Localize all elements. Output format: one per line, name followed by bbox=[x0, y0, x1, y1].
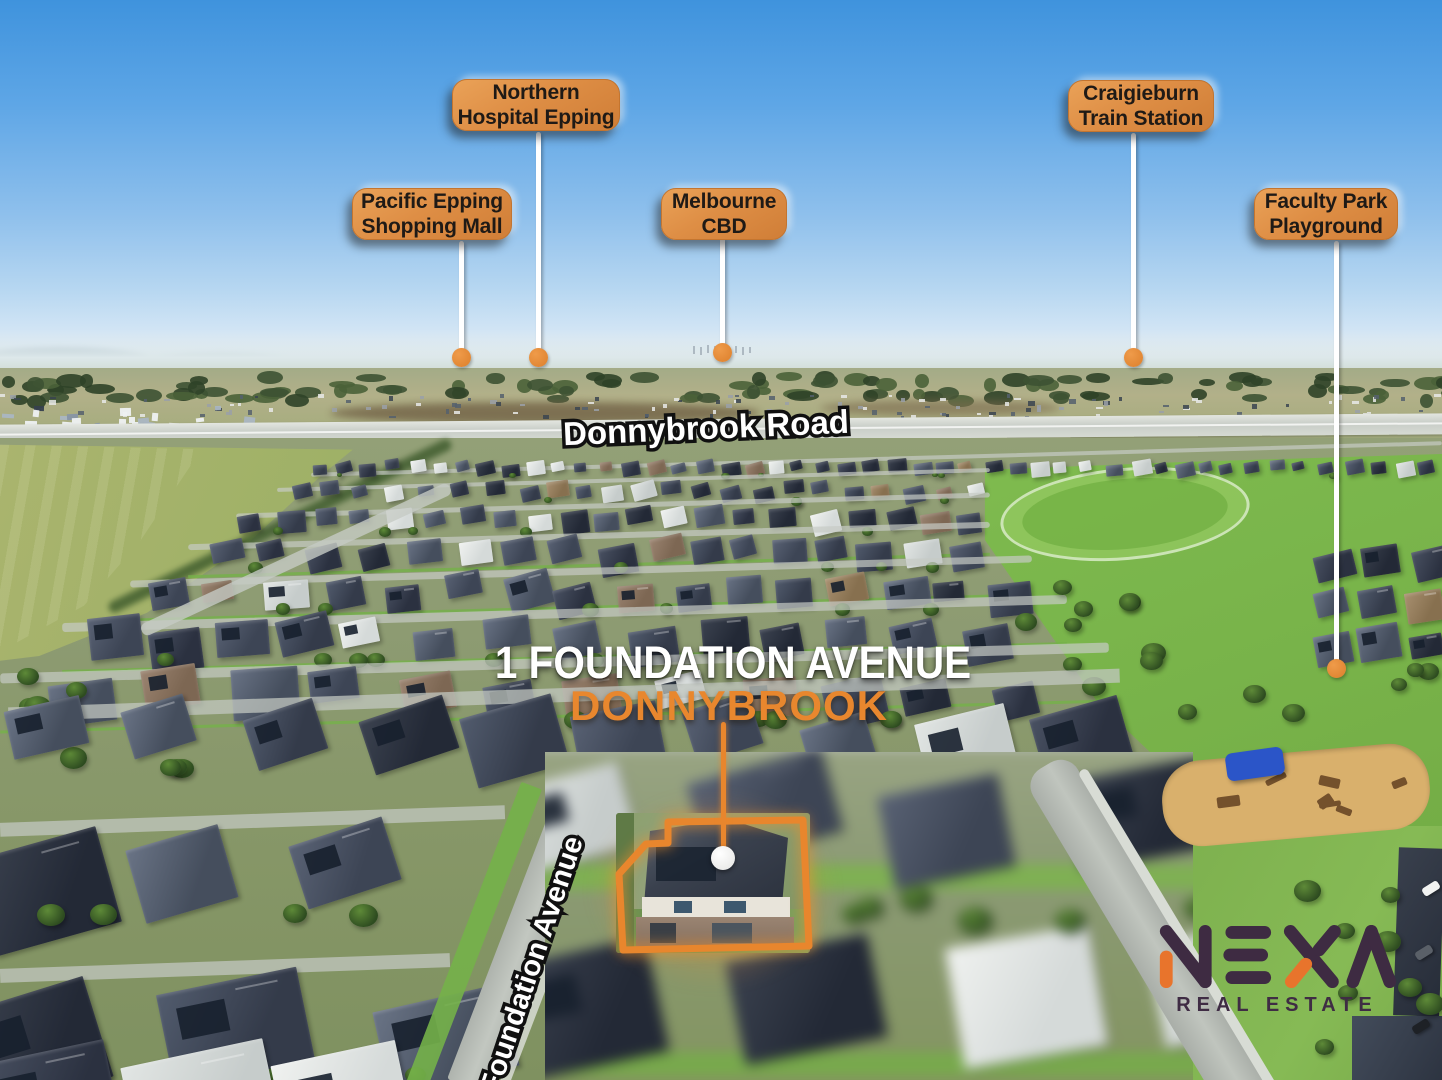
scene-paint bbox=[486, 373, 504, 384]
scene-paint bbox=[1043, 720, 1079, 750]
scene-paint bbox=[1096, 407, 1103, 409]
scene-paint bbox=[27, 377, 45, 392]
scene-paint bbox=[346, 400, 352, 403]
scene-paint bbox=[459, 539, 493, 566]
scene-paint bbox=[897, 412, 902, 414]
scene-paint bbox=[269, 408, 273, 412]
scene-paint bbox=[1053, 393, 1068, 404]
scene-paint bbox=[379, 527, 392, 537]
scene-paint bbox=[977, 413, 981, 415]
scene-paint bbox=[406, 538, 442, 565]
callout-dot bbox=[452, 348, 471, 367]
callout-label: Northern Hospital Epping bbox=[453, 80, 619, 130]
scene-paint bbox=[1294, 880, 1322, 902]
scene-paint bbox=[452, 403, 457, 407]
callout-line bbox=[536, 132, 541, 356]
scene-paint bbox=[33, 410, 40, 418]
scene-paint bbox=[1120, 595, 1139, 610]
scene-paint bbox=[593, 512, 620, 532]
callout-label: Pacific Epping Shopping Mall bbox=[353, 189, 511, 239]
scene-paint bbox=[1282, 704, 1304, 722]
scene-paint bbox=[545, 793, 569, 831]
scene-paint bbox=[385, 584, 421, 613]
scene-paint bbox=[528, 514, 552, 533]
scene-paint bbox=[810, 395, 814, 397]
scene-paint bbox=[601, 485, 624, 504]
scene-paint bbox=[700, 347, 702, 356]
property-pointer-line bbox=[721, 722, 726, 858]
scene-paint bbox=[403, 587, 413, 590]
scene-paint bbox=[226, 412, 230, 415]
scene-paint bbox=[1365, 552, 1379, 564]
callout-pacific-epping-shopping-mall: Pacific Epping Shopping Mall bbox=[352, 188, 512, 240]
scene-paint bbox=[86, 613, 143, 660]
scene-paint bbox=[560, 509, 590, 535]
scene-paint bbox=[345, 580, 356, 584]
scene-paint bbox=[0, 394, 4, 397]
scene-paint bbox=[1318, 640, 1332, 653]
scene-paint bbox=[1329, 401, 1333, 404]
scene-paint bbox=[889, 584, 905, 596]
scene-paint bbox=[416, 403, 421, 407]
scene-paint bbox=[901, 398, 904, 402]
scene-paint bbox=[573, 586, 585, 591]
scene-paint bbox=[389, 396, 393, 401]
scene-paint bbox=[383, 484, 403, 502]
scene-paint bbox=[520, 404, 525, 406]
scene-paint bbox=[1184, 896, 1193, 919]
property-suburb: DONNYBROOK bbox=[429, 682, 1029, 730]
scene-paint bbox=[332, 408, 336, 412]
scene-paint bbox=[984, 378, 996, 391]
scene-paint bbox=[269, 586, 285, 597]
scene-paint bbox=[50, 397, 56, 399]
scene-paint bbox=[14, 712, 43, 734]
scene-paint bbox=[1242, 375, 1262, 387]
scene-paint bbox=[913, 621, 926, 626]
scene-paint bbox=[304, 616, 320, 622]
scene-paint bbox=[140, 414, 144, 417]
scene-paint bbox=[747, 385, 760, 399]
scene-paint bbox=[855, 542, 893, 573]
scene-paint bbox=[831, 581, 846, 593]
scene-paint bbox=[1315, 1039, 1335, 1055]
scene-paint bbox=[781, 627, 793, 631]
scene-paint bbox=[940, 398, 946, 401]
callout-faculty-park-playground: Faculty Park Playground bbox=[1254, 188, 1398, 240]
scene-paint bbox=[201, 1053, 244, 1064]
callout-label: Faculty Park Playground bbox=[1255, 189, 1397, 239]
scene-paint bbox=[313, 464, 327, 474]
scene-paint bbox=[958, 907, 992, 934]
scene-paint bbox=[289, 1073, 339, 1080]
scene-paint bbox=[435, 632, 447, 635]
scene-paint bbox=[630, 372, 659, 383]
callout-dot bbox=[713, 343, 732, 362]
scene-paint bbox=[153, 586, 167, 598]
scene-paint bbox=[900, 886, 932, 912]
scene-paint bbox=[1007, 394, 1010, 398]
scene-paint bbox=[735, 395, 739, 398]
scene-paint bbox=[582, 407, 588, 410]
scene-paint bbox=[919, 399, 926, 402]
scene-paint bbox=[496, 402, 501, 406]
scene-paint bbox=[106, 393, 134, 403]
scene-paint bbox=[1069, 399, 1076, 404]
scene-paint bbox=[1104, 401, 1108, 406]
scene-paint bbox=[1434, 394, 1441, 397]
scene-paint bbox=[945, 925, 1109, 1070]
scene-paint bbox=[588, 402, 593, 404]
scene-paint bbox=[1427, 635, 1437, 639]
scene-paint bbox=[1420, 394, 1433, 408]
scene-paint bbox=[695, 586, 705, 589]
scene-paint bbox=[319, 480, 339, 496]
scene-paint bbox=[37, 904, 65, 926]
callout-dot bbox=[1327, 659, 1346, 678]
scene-paint bbox=[420, 396, 424, 399]
scene-paint bbox=[285, 394, 309, 407]
scene-paint bbox=[663, 404, 667, 408]
scene-paint bbox=[313, 675, 331, 688]
scene-paint bbox=[847, 619, 859, 622]
scene-paint bbox=[732, 508, 755, 525]
scene-paint bbox=[235, 980, 277, 991]
callout-line bbox=[1131, 133, 1136, 356]
scene-paint bbox=[1226, 381, 1243, 391]
callout-line bbox=[720, 238, 725, 350]
scene-paint bbox=[1244, 461, 1261, 474]
scene-paint bbox=[785, 402, 789, 404]
scene-paint bbox=[573, 463, 586, 473]
scene-paint bbox=[575, 407, 580, 410]
scene-paint bbox=[841, 395, 847, 398]
scene-paint bbox=[366, 407, 371, 410]
scene-paint bbox=[136, 389, 162, 402]
scene-paint bbox=[49, 400, 55, 405]
scene-paint bbox=[238, 403, 242, 407]
scene-paint bbox=[1404, 588, 1442, 624]
scene-paint bbox=[716, 400, 720, 404]
callout-line bbox=[459, 241, 464, 356]
scene-paint bbox=[1158, 373, 1173, 383]
scene-paint bbox=[600, 461, 613, 472]
scene-paint bbox=[389, 590, 401, 600]
scene-paint bbox=[102, 400, 105, 403]
scene-paint bbox=[78, 411, 84, 415]
scene-paint bbox=[863, 407, 867, 409]
scene-paint bbox=[1026, 408, 1030, 412]
scene-paint bbox=[1196, 400, 1202, 403]
scene-paint bbox=[1243, 685, 1266, 703]
scene-paint bbox=[176, 999, 230, 1040]
scene-paint bbox=[1433, 549, 1442, 554]
scene-paint bbox=[726, 575, 763, 605]
scene-paint bbox=[693, 346, 695, 355]
scene-paint bbox=[546, 480, 570, 499]
scene-paint bbox=[315, 507, 337, 526]
callout-dot bbox=[1124, 348, 1143, 367]
scene-paint bbox=[856, 897, 883, 919]
scene-paint bbox=[863, 390, 879, 402]
scene-paint bbox=[594, 409, 599, 411]
scene-paint bbox=[949, 583, 958, 586]
scene-paint bbox=[510, 580, 528, 596]
callout-label: Craigieburn Train Station bbox=[1069, 81, 1213, 131]
scene-paint bbox=[334, 384, 347, 398]
scene-paint bbox=[446, 409, 449, 414]
scene-paint bbox=[90, 904, 117, 925]
scene-paint bbox=[680, 589, 693, 599]
scene-paint bbox=[736, 399, 741, 403]
scene-paint bbox=[773, 537, 808, 564]
scene-paint bbox=[303, 845, 342, 877]
scene-paint bbox=[543, 415, 548, 419]
scene-paint bbox=[349, 904, 378, 927]
scene-paint bbox=[1374, 395, 1379, 399]
scene-paint bbox=[509, 473, 516, 479]
property-boundary-outline bbox=[606, 803, 820, 963]
scene-paint bbox=[148, 675, 168, 692]
scene-paint bbox=[1106, 464, 1123, 476]
scene-paint bbox=[190, 376, 208, 385]
scene-paint bbox=[889, 395, 892, 397]
scene-paint bbox=[545, 1052, 1193, 1076]
scene-paint bbox=[1053, 461, 1067, 473]
scene-paint bbox=[1355, 410, 1360, 413]
scene-paint bbox=[622, 590, 635, 600]
scene-paint bbox=[1352, 401, 1358, 404]
scene-paint bbox=[2, 414, 14, 419]
scene-paint bbox=[678, 400, 682, 402]
scene-paint bbox=[595, 397, 599, 401]
scene-paint bbox=[1370, 461, 1386, 474]
scene-paint bbox=[389, 416, 396, 419]
scene-paint bbox=[468, 398, 471, 400]
scene-paint bbox=[1009, 462, 1026, 474]
scene-paint bbox=[144, 399, 147, 402]
scene-paint bbox=[1416, 993, 1442, 1016]
scene-paint bbox=[222, 628, 241, 641]
scene-paint bbox=[1086, 373, 1110, 382]
scene-paint bbox=[230, 404, 234, 406]
scene-paint bbox=[637, 587, 648, 590]
scene-paint bbox=[155, 638, 174, 654]
scene-paint bbox=[594, 374, 622, 387]
scene-paint bbox=[1286, 404, 1289, 407]
callout-line bbox=[1334, 241, 1339, 667]
scene-paint bbox=[169, 581, 181, 585]
callout-dot bbox=[529, 348, 548, 367]
scene-paint bbox=[207, 404, 211, 407]
callout-label: Melbourne CBD bbox=[662, 189, 786, 239]
scene-paint bbox=[1163, 405, 1169, 408]
scene-paint bbox=[769, 507, 798, 528]
scene-paint bbox=[575, 484, 592, 498]
scene-paint bbox=[358, 463, 376, 477]
scene-paint bbox=[408, 527, 418, 535]
scene-paint bbox=[282, 623, 302, 639]
scene-paint bbox=[749, 347, 751, 353]
scene-paint bbox=[1362, 632, 1378, 646]
callout-northern-hospital-epping: Northern Hospital Epping bbox=[452, 79, 620, 131]
scene-paint bbox=[318, 394, 324, 397]
scene-paint bbox=[1408, 632, 1442, 659]
scene-paint bbox=[288, 582, 302, 585]
scene-paint bbox=[1396, 460, 1417, 478]
scene-paint bbox=[1011, 412, 1016, 416]
scene-paint bbox=[1023, 375, 1054, 386]
scene-paint bbox=[1178, 704, 1198, 720]
scene-paint bbox=[1119, 397, 1122, 401]
scene-paint bbox=[1419, 410, 1423, 412]
scene-paint bbox=[1030, 461, 1050, 478]
scene-paint bbox=[1014, 398, 1021, 400]
scene-paint bbox=[528, 573, 542, 579]
nexa-logo: REAL ESTATE bbox=[1156, 922, 1398, 1034]
scene-paint bbox=[1356, 622, 1403, 663]
scene-paint bbox=[652, 407, 655, 411]
property-pointer-dot bbox=[711, 846, 735, 870]
scene-paint bbox=[1092, 399, 1096, 402]
scene-paint bbox=[248, 410, 252, 415]
scene-paint bbox=[215, 619, 271, 658]
scene-paint bbox=[513, 412, 518, 414]
scene-paint bbox=[925, 406, 930, 408]
scene-paint bbox=[376, 385, 407, 394]
scene-paint bbox=[1159, 411, 1164, 413]
scene-paint bbox=[1053, 580, 1072, 595]
scene-paint bbox=[120, 408, 131, 416]
scene-paint bbox=[17, 668, 39, 685]
nexa-tagline: REAL ESTATE bbox=[1156, 994, 1398, 1017]
aerial-locator-map: Northern Hospital Epping Pacific Epping … bbox=[0, 0, 1442, 1080]
scene-paint bbox=[255, 396, 258, 399]
scene-paint bbox=[164, 399, 170, 401]
scene-paint bbox=[493, 510, 516, 528]
scene-paint bbox=[527, 379, 553, 391]
scene-paint bbox=[1028, 401, 1034, 406]
scene-paint bbox=[769, 396, 775, 400]
scene-paint bbox=[728, 395, 734, 398]
scene-paint bbox=[768, 460, 784, 474]
scene-paint bbox=[735, 346, 737, 353]
scene-paint bbox=[726, 620, 740, 623]
scene-paint bbox=[200, 414, 205, 416]
scene-paint bbox=[942, 413, 946, 415]
scene-paint bbox=[93, 623, 112, 639]
scene-paint bbox=[872, 410, 877, 415]
scene-paint bbox=[707, 345, 709, 353]
scene-paint bbox=[500, 394, 503, 397]
scene-paint bbox=[545, 973, 582, 1022]
scene-paint bbox=[45, 1053, 85, 1063]
scene-paint bbox=[956, 406, 961, 409]
scene-paint bbox=[1074, 601, 1093, 616]
scene-paint bbox=[152, 412, 159, 420]
scene-paint bbox=[41, 841, 79, 854]
scene-paint bbox=[343, 625, 357, 636]
scene-paint bbox=[0, 1072, 42, 1080]
scene-paint bbox=[2, 376, 15, 388]
callout-melbourne-cbd: Melbourne CBD bbox=[661, 188, 787, 240]
scene-paint bbox=[1407, 663, 1424, 676]
scene-paint bbox=[160, 759, 181, 775]
scene-paint bbox=[463, 572, 474, 576]
scene-paint bbox=[1037, 405, 1041, 410]
callout-craigieburn-train-station: Craigieburn Train Station bbox=[1068, 80, 1214, 132]
scene-paint bbox=[1413, 639, 1425, 648]
scene-paint bbox=[1005, 402, 1010, 406]
scene-paint bbox=[14, 398, 21, 400]
scene-paint bbox=[454, 411, 460, 414]
scene-paint bbox=[215, 406, 222, 410]
scene-paint bbox=[660, 480, 681, 495]
scene-paint bbox=[372, 720, 406, 748]
scene-paint bbox=[1057, 375, 1082, 384]
nexa-wordmark bbox=[1156, 922, 1398, 988]
scene-paint bbox=[196, 417, 204, 422]
scene-paint bbox=[341, 828, 369, 839]
scene-paint bbox=[254, 719, 283, 744]
scene-paint bbox=[60, 747, 87, 769]
scene-paint bbox=[655, 630, 670, 634]
scene-paint bbox=[1183, 405, 1189, 409]
scene-paint bbox=[382, 405, 387, 409]
scene-paint bbox=[674, 398, 679, 401]
scene-paint bbox=[1401, 397, 1405, 401]
scene-paint bbox=[155, 701, 174, 709]
scene-paint bbox=[1270, 460, 1285, 471]
scene-paint bbox=[1377, 589, 1388, 593]
scene-paint bbox=[762, 761, 803, 774]
scene-paint bbox=[783, 479, 804, 494]
scene-paint bbox=[1424, 592, 1435, 596]
scene-paint bbox=[1398, 978, 1422, 997]
scene-paint bbox=[1252, 404, 1257, 408]
scene-paint bbox=[1381, 887, 1400, 903]
scene-paint bbox=[485, 480, 505, 496]
scene-paint bbox=[240, 395, 243, 400]
scene-paint bbox=[742, 347, 744, 355]
scene-paint bbox=[1059, 407, 1064, 410]
scene-paint bbox=[273, 527, 283, 535]
scene-paint bbox=[237, 513, 262, 534]
